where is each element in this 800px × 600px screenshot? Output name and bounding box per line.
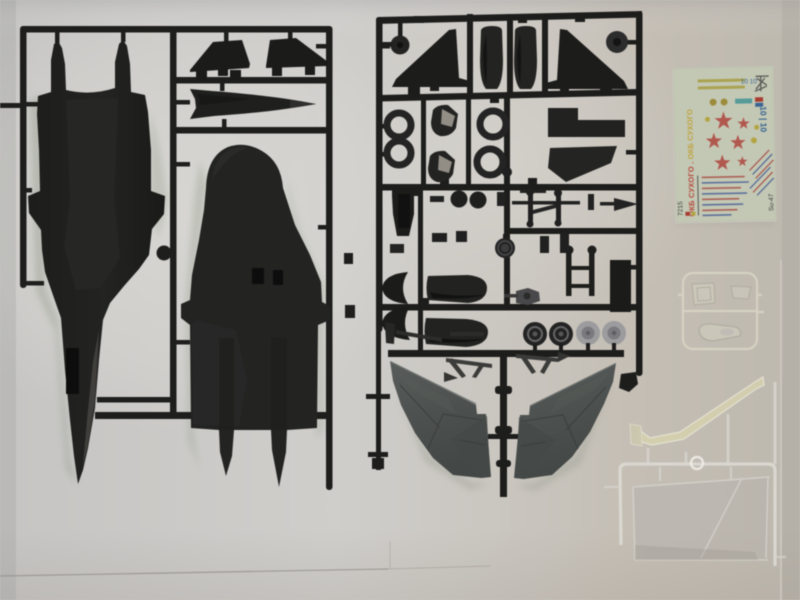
svg-text:7215: 7215 xyxy=(677,201,684,216)
svg-text:Su-47: Su-47 xyxy=(768,193,775,211)
svg-text:10 | 10: 10 | 10 xyxy=(758,106,769,132)
svg-text:10 10: 10 10 xyxy=(741,78,758,85)
